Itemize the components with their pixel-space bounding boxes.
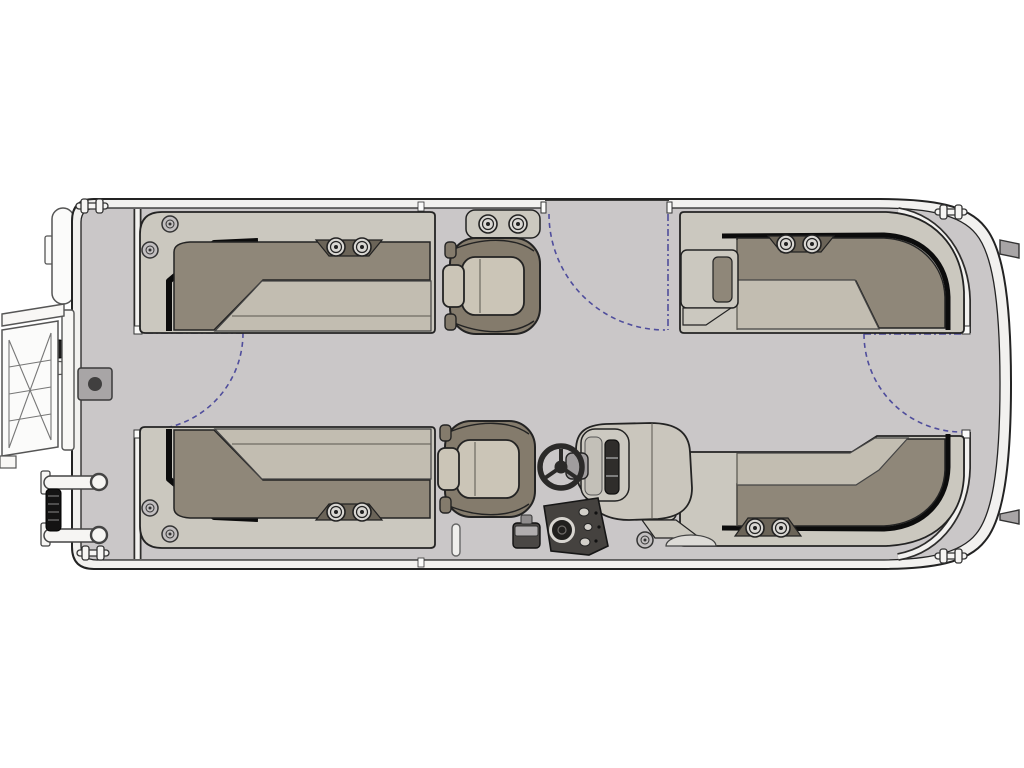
rail-ring [91, 527, 107, 543]
mid-gate-gap [546, 201, 668, 211]
motor-mount-tab-bottom [1000, 510, 1019, 524]
gate-post-cap [541, 202, 546, 213]
motor-mount-tab-top [1000, 240, 1019, 258]
ski-tow-post [452, 524, 460, 556]
speaker-icon [746, 519, 764, 537]
cup-holder-icon [142, 500, 158, 516]
captain-chair-forward [443, 238, 540, 334]
rail-ring [91, 474, 107, 490]
speaker-icon [327, 503, 345, 521]
ribbed-handle [46, 489, 61, 531]
deck-fitting-icon [637, 532, 653, 548]
speaker-icon [509, 215, 527, 233]
bow-trim-body [52, 208, 74, 304]
gate-post-cap [667, 202, 672, 213]
pedestal-socket [88, 377, 102, 391]
ladder-mount-rail [62, 310, 74, 450]
floorplan-canvas: Pontoon Boat Floor Plan — Top View [0, 0, 1024, 768]
speaker-plate [466, 210, 540, 238]
speaker-icon [772, 519, 790, 537]
switch-icon [579, 508, 589, 516]
lounge-bow-top [140, 212, 435, 333]
cup-holder-icon [162, 216, 178, 232]
switch-icon [584, 524, 592, 531]
speaker-icon [353, 238, 371, 256]
speaker-icon [803, 235, 821, 253]
cup-holder-icon [162, 526, 178, 542]
boat-floorplan-page: Pontoon Boat Floor Plan — Top View [0, 0, 1024, 768]
ladder-foot [0, 456, 16, 468]
lounge-bow-bottom [140, 427, 435, 548]
switch-icon [580, 538, 590, 546]
bow-nose-trim [45, 208, 74, 304]
lounge-stern-top [680, 212, 964, 333]
speaker-icon [353, 503, 371, 521]
cup-holder-icon [142, 242, 158, 258]
gauge-icon [551, 519, 574, 542]
dash-instrument-stack [605, 440, 619, 494]
switch-dot [594, 539, 597, 542]
bow-deck-hardware [78, 368, 112, 400]
speaker-icon [777, 235, 795, 253]
armrest-inset [713, 257, 732, 302]
instrument-pod [544, 498, 608, 555]
step-box-cap [521, 515, 532, 524]
rail-joint [418, 558, 424, 567]
speaker-icon [327, 238, 345, 256]
step-box-top [515, 526, 538, 536]
speaker-icon [479, 215, 497, 233]
captain-chair-helm [438, 421, 535, 517]
switch-dot [597, 525, 600, 528]
switch-dot [594, 511, 597, 514]
rail-joint [418, 202, 424, 211]
cushion-seat-light [737, 280, 879, 329]
